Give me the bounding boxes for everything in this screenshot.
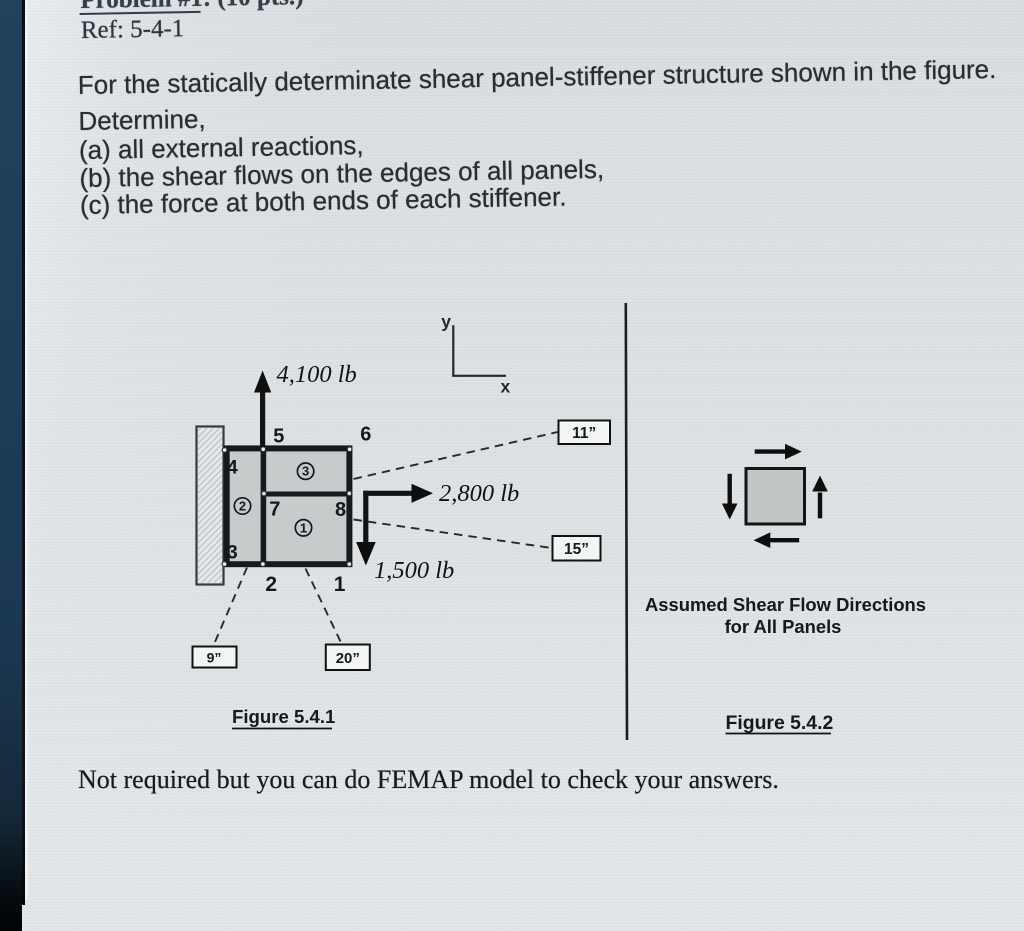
svg-text:2,800 lb: 2,800 lb — [439, 480, 519, 507]
svg-text:1,500 lb: 1,500 lb — [374, 557, 454, 584]
svg-text:9”: 9” — [207, 650, 222, 666]
svg-text:15”: 15” — [564, 541, 589, 558]
svg-text:1: 1 — [334, 573, 346, 596]
svg-text:2: 2 — [239, 499, 246, 514]
svg-text:Figure 5.4.2: Figure 5.4.2 — [726, 712, 834, 734]
svg-text:2: 2 — [265, 573, 277, 596]
svg-text:3: 3 — [302, 464, 309, 479]
svg-text:4: 4 — [227, 457, 238, 478]
svg-text:x: x — [501, 377, 511, 397]
svg-text:Figure 5.4.1: Figure 5.4.1 — [232, 706, 335, 727]
svg-text:3: 3 — [227, 542, 238, 563]
svg-text:y: y — [441, 312, 451, 332]
svg-text:5: 5 — [273, 426, 284, 448]
svg-text:Assumed Shear Flow Directions: Assumed Shear Flow Directions — [645, 594, 926, 615]
svg-text:11”: 11” — [572, 425, 596, 442]
svg-text:7: 7 — [269, 499, 280, 521]
svg-text:1: 1 — [300, 520, 307, 535]
svg-text:4,100 lb: 4,100 lb — [277, 361, 357, 388]
svg-text:6: 6 — [360, 424, 371, 446]
svg-text:8: 8 — [335, 499, 346, 521]
svg-text:20”: 20” — [336, 650, 360, 667]
svg-text:for All Panels: for All Panels — [725, 616, 842, 637]
